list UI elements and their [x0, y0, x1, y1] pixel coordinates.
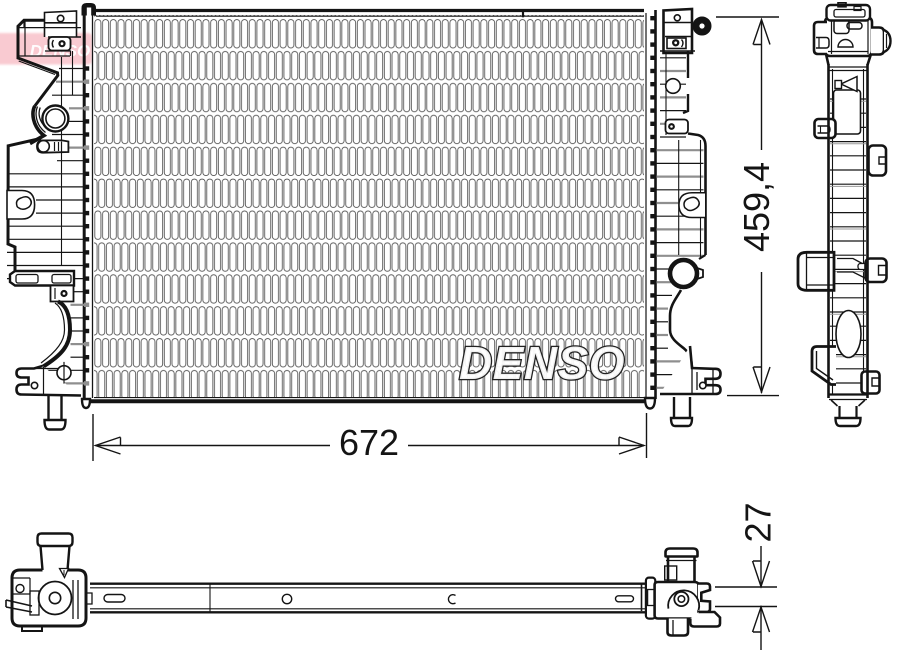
svg-text:459,4: 459,4	[736, 162, 777, 252]
svg-text:27: 27	[738, 502, 779, 542]
svg-text:672: 672	[339, 422, 399, 463]
svg-text:DENSO: DENSO	[459, 337, 625, 389]
